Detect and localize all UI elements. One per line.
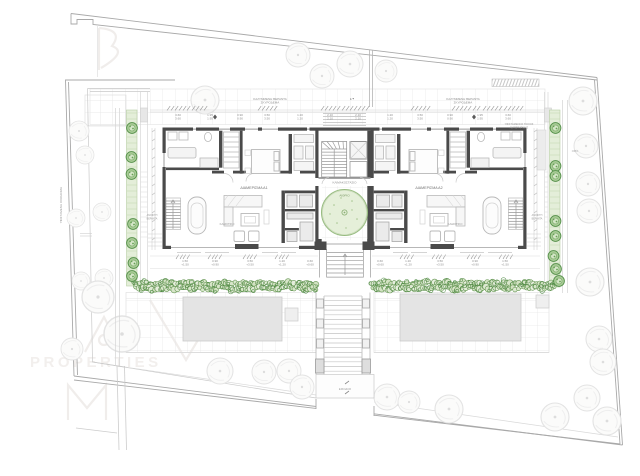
svg-text:0.90: 0.90 <box>237 117 243 121</box>
svg-text:3.60: 3.60 <box>505 117 511 121</box>
svg-text:ΒΕΡΑΝΤΑ: ΒΕΡΑΝΤΑ <box>147 218 158 221</box>
svg-text:ΥΦΙΣΤΑΜΕΝΟΣ ΤΟΙΧΟΣ: ΥΦΙΣΤΑΜΕΝΟΣ ΤΟΙΧΟΣ <box>505 122 534 126</box>
svg-text:+1.50: +1.50 <box>181 263 189 267</box>
svg-text:ΔΙΑΜΕΡΙΣΜΑ Α2: ΔΙΑΜΕΡΙΣΜΑ Α2 <box>415 186 442 190</box>
svg-text:2.10: 2.10 <box>355 117 361 121</box>
svg-text:ΟΡΙΟ: ΟΡΙΟ <box>572 149 579 153</box>
svg-text:+0.90: +0.90 <box>211 263 219 267</box>
svg-text:+1.50: +1.50 <box>501 263 509 267</box>
svg-text:ΚΛΙΜΑΚΟΣΤΑΣΙΟ: ΚΛΙΜΑΚΟΣΤΑΣΙΟ <box>332 181 357 185</box>
svg-text:1.20: 1.20 <box>387 117 393 121</box>
svg-text:1.95: 1.95 <box>477 117 483 121</box>
svg-text:ΕΙΣΟΔΟΣ: ΕΙΣΟΔΟΣ <box>339 387 351 391</box>
svg-text:+0.60: +0.60 <box>376 263 384 267</box>
svg-text:1.95: 1.95 <box>207 117 213 121</box>
svg-text:ΒΕΡΑΝΤΑ: ΒΕΡΑΝΤΑ <box>532 218 543 221</box>
svg-text:+3.50: +3.50 <box>436 263 444 267</box>
svg-text:ΚΑΘΙΣΤΙΚΟ: ΚΑΘΙΣΤΙΚΟ <box>448 222 464 226</box>
svg-text:ΑΙΘΡΙΟ: ΑΙΘΡΙΟ <box>339 194 350 198</box>
svg-text:+1.20: +1.20 <box>404 263 412 267</box>
svg-text:ΣΚΥΡΟΔΕΜΑ: ΣΚΥΡΟΔΕΜΑ <box>261 101 280 105</box>
svg-text:3.60: 3.60 <box>175 117 181 121</box>
svg-text:+0.90: +0.90 <box>471 263 479 267</box>
svg-text:+1.20: +1.20 <box>278 263 286 267</box>
svg-text:2.10: 2.10 <box>327 117 333 121</box>
svg-text:+0.60: +0.60 <box>306 263 314 267</box>
svg-text:ΑΝΤΙΣΤΗΡΙΞΗΣ: ΑΝΤΙΣΤΗΡΙΞΗΣ <box>510 126 529 130</box>
svg-text:▲▼: ▲▼ <box>350 98 355 101</box>
svg-text:3.50: 3.50 <box>264 117 270 121</box>
svg-text:ΚΑΘΙΣΤΙΚΟ: ΚΑΘΙΣΤΙΚΟ <box>220 222 236 226</box>
svg-text:+3.50: +3.50 <box>246 263 254 267</box>
svg-text:ΣΚΥΡΟΔΕΜΑ: ΣΚΥΡΟΔΕΜΑ <box>454 101 473 105</box>
svg-text:1.20: 1.20 <box>297 117 303 121</box>
svg-text:ΥΦΙΣΤΑΜΕΝΗ ΟΙΚΟΔΟΜΗ: ΥΦΙΣΤΑΜΕΝΗ ΟΙΚΟΔΟΜΗ <box>59 187 63 223</box>
svg-text:0.90: 0.90 <box>447 117 453 121</box>
svg-text:ΔΙΑΜΕΡΙΣΜΑ Α1: ΔΙΑΜΕΡΙΣΜΑ Α1 <box>240 186 267 190</box>
svg-text:3.50: 3.50 <box>417 117 423 121</box>
